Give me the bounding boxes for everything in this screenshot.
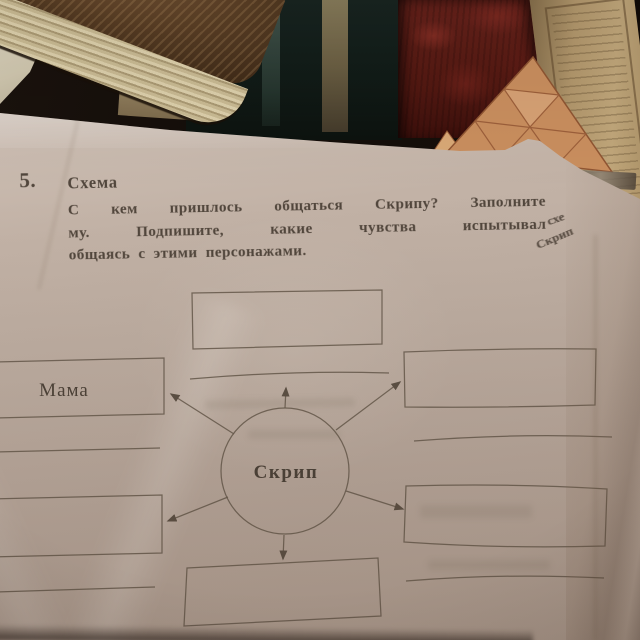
node-box-top [192,290,382,349]
answer-line-left-lower [0,587,155,592]
answer-line-top [190,372,389,379]
arrow-down-left [168,497,228,521]
node-box-bottom [184,558,381,626]
arrow-up-left [171,394,234,434]
photo-scene: 5. Схема С кем пришлось общаться Скрипу?… [0,0,640,640]
answer-line-left-upper [0,448,160,452]
node-label-mama: Мама [39,380,89,401]
center-label-skrip: Скрип [254,462,319,483]
arrow-up-right [336,382,400,430]
beige-book-spine [322,0,348,132]
arrow-down [283,535,284,559]
arrow-down-right [346,491,403,509]
page-curl-shading [566,138,640,640]
page-curl-crease [594,235,597,640]
node-box-left-middle [0,495,162,557]
arrow-up [285,388,286,408]
